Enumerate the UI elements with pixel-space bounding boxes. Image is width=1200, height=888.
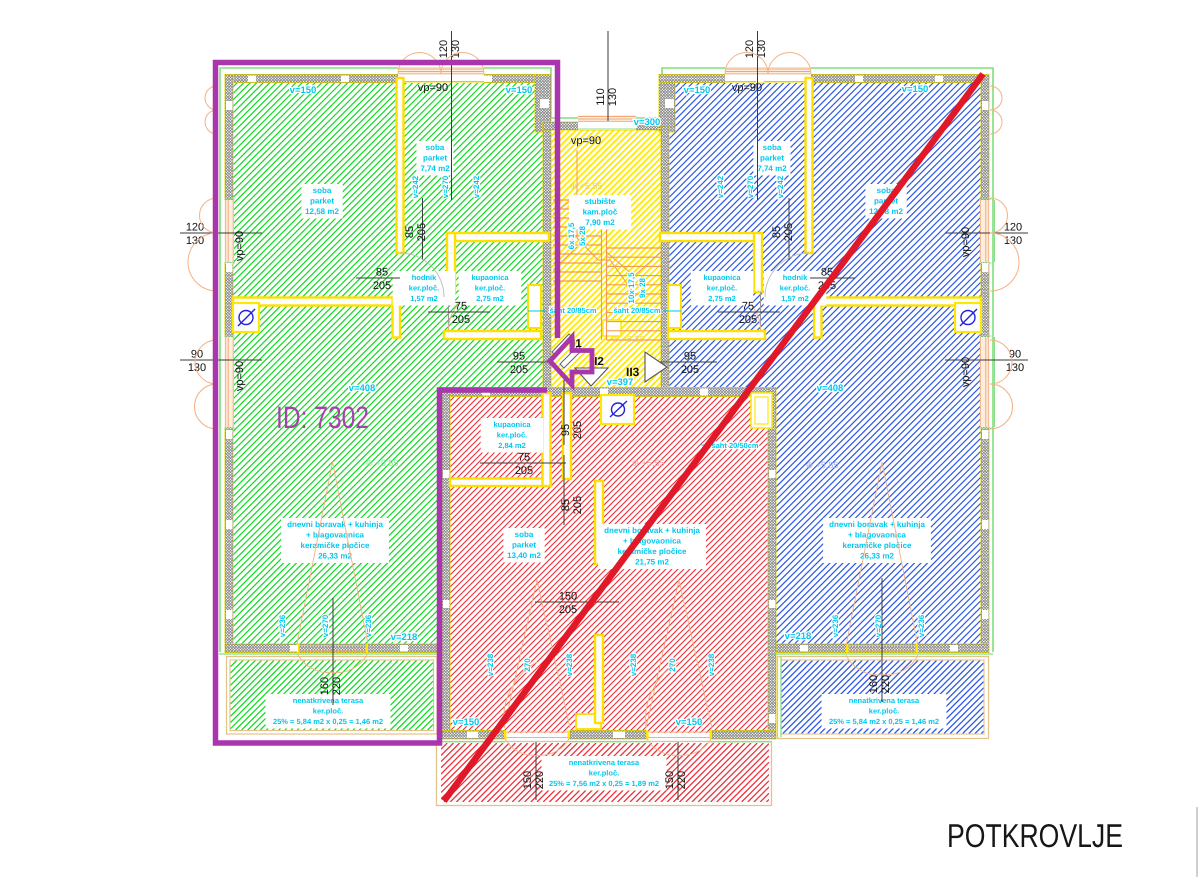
svg-text:šaht 20/50cm: šaht 20/50cm xyxy=(711,441,758,450)
svg-text:ID: 7302: ID: 7302 xyxy=(276,400,369,435)
svg-text:130: 130 xyxy=(1004,235,1022,247)
svg-text:25% = 5,84 m2 x 0,25 = 1,46 m2: 25% = 5,84 m2 x 0,25 = 1,46 m2 xyxy=(273,717,383,726)
svg-text:120: 120 xyxy=(744,40,756,58)
svg-text:⊕ +5,85: ⊕ +5,85 xyxy=(806,460,839,470)
svg-text:85: 85 xyxy=(404,226,416,238)
svg-text:kam.ploč: kam.ploč xyxy=(583,208,618,217)
svg-text:v=236: v=236 xyxy=(278,614,287,637)
svg-text:stubište: stubište xyxy=(585,197,616,206)
svg-text:soba: soba xyxy=(313,186,332,195)
svg-text:soba: soba xyxy=(763,143,782,152)
svg-text:⊕ +5,85: ⊕ +5,85 xyxy=(570,181,603,191)
svg-text:ker.ploč.: ker.ploč. xyxy=(409,284,439,293)
svg-text:vp=90: vp=90 xyxy=(732,82,762,94)
svg-text:160: 160 xyxy=(868,675,880,693)
svg-text:ker.ploč.: ker.ploč. xyxy=(475,284,505,293)
svg-text:205: 205 xyxy=(572,496,584,514)
svg-text:POTKROVLJE: POTKROVLJE xyxy=(947,817,1123,854)
svg-text:25% = 7,56 m2 x 0,25 = 1,89 m2: 25% = 7,56 m2 x 0,25 = 1,89 m2 xyxy=(549,779,659,788)
svg-text:v=238: v=238 xyxy=(565,653,574,676)
svg-text:hodnik: hodnik xyxy=(783,273,808,282)
svg-text:kupaonica: kupaonica xyxy=(493,420,531,429)
svg-text:ker.ploč.: ker.ploč. xyxy=(780,284,810,293)
svg-text:205: 205 xyxy=(559,604,577,616)
svg-text:dnevni boravak + kuhinja: dnevni boravak + kuhinja xyxy=(829,520,925,529)
svg-text:120: 120 xyxy=(1004,222,1022,234)
svg-text:v=218: v=218 xyxy=(391,632,418,643)
svg-text:v=236: v=236 xyxy=(364,614,373,637)
svg-text:v=150: v=150 xyxy=(453,717,480,728)
svg-text:vp=90: vp=90 xyxy=(960,227,972,257)
svg-text:vp=90: vp=90 xyxy=(234,361,246,391)
svg-text:parket: parket xyxy=(310,197,334,206)
svg-text:2,75 m2: 2,75 m2 xyxy=(708,294,736,303)
svg-text:v=150: v=150 xyxy=(684,85,711,96)
svg-text:šaht 20/85cm: šaht 20/85cm xyxy=(613,306,660,315)
svg-text:205: 205 xyxy=(681,364,699,376)
svg-text:5x 28: 5x 28 xyxy=(578,225,587,246)
svg-text:95: 95 xyxy=(684,351,696,363)
svg-text:160: 160 xyxy=(319,677,331,695)
svg-text:120: 120 xyxy=(438,40,450,58)
svg-text:v=242: v=242 xyxy=(776,175,785,198)
svg-text:130: 130 xyxy=(186,235,204,247)
svg-text:7,74 m2: 7,74 m2 xyxy=(420,164,450,173)
svg-text:13,40 m2: 13,40 m2 xyxy=(507,551,541,560)
svg-text:vp=90: vp=90 xyxy=(960,357,972,387)
svg-text:vp=90: vp=90 xyxy=(571,135,601,147)
svg-text:v=236: v=236 xyxy=(831,614,840,637)
svg-text:parket: parket xyxy=(423,154,447,163)
svg-text:220: 220 xyxy=(331,677,343,695)
svg-text:+ blagovaonica: + blagovaonica xyxy=(848,531,907,540)
svg-text:205: 205 xyxy=(452,314,470,326)
svg-text:2,84 m2: 2,84 m2 xyxy=(498,441,526,450)
svg-text:85: 85 xyxy=(771,226,783,238)
svg-text:v=238: v=238 xyxy=(486,653,495,676)
svg-text:v=150: v=150 xyxy=(506,85,533,96)
svg-text:220: 220 xyxy=(534,771,546,789)
svg-text:130: 130 xyxy=(607,88,619,106)
svg-text:270: 270 xyxy=(668,658,677,672)
svg-text:⊕ +5,55: ⊕ +5,55 xyxy=(632,458,665,468)
svg-text:7,74 m2: 7,74 m2 xyxy=(757,164,787,173)
svg-text:205: 205 xyxy=(783,223,795,241)
svg-text:vp=90: vp=90 xyxy=(234,231,246,261)
svg-text:nenatkrivena terasa: nenatkrivena terasa xyxy=(569,758,640,767)
svg-text:kupaonica: kupaonica xyxy=(471,273,509,282)
svg-text:parket: parket xyxy=(512,541,536,550)
svg-text:205: 205 xyxy=(572,421,584,439)
svg-text:1,57 m2: 1,57 m2 xyxy=(781,294,809,303)
svg-text:soba: soba xyxy=(426,143,445,152)
svg-text:205: 205 xyxy=(510,364,528,376)
svg-text:+ blagovaonica: + blagovaonica xyxy=(306,531,365,540)
svg-text:2,75 m2: 2,75 m2 xyxy=(476,294,504,303)
svg-text:150: 150 xyxy=(664,771,676,789)
svg-text:keramičke pločice: keramičke pločice xyxy=(843,541,912,550)
svg-text:v=218: v=218 xyxy=(785,631,812,642)
svg-text:ker.ploč.: ker.ploč. xyxy=(589,769,619,778)
svg-text:21,75 m2: 21,75 m2 xyxy=(635,558,669,567)
svg-text:v=242: v=242 xyxy=(472,175,481,198)
svg-text:26,33 m2: 26,33 m2 xyxy=(860,552,894,561)
svg-text:270: 270 xyxy=(523,658,532,672)
svg-text:kupaonica: kupaonica xyxy=(703,273,741,282)
svg-text:150: 150 xyxy=(522,771,534,789)
svg-text:nenatkrivena terasa: nenatkrivena terasa xyxy=(849,696,920,705)
svg-text:6x 17,5: 6x 17,5 xyxy=(567,222,576,249)
svg-text:dnevni boravak + kuhinja: dnevni boravak + kuhinja xyxy=(604,526,700,535)
svg-text:12,58 m2: 12,58 m2 xyxy=(305,207,339,216)
svg-text:⊕ +5,85: ⊕ +5,85 xyxy=(366,458,399,468)
svg-text:v=236: v=236 xyxy=(917,614,926,637)
svg-text:⊕ +6,30: ⊕ +6,30 xyxy=(612,334,645,344)
svg-text:90: 90 xyxy=(191,349,203,361)
svg-text:ker.ploč.: ker.ploč. xyxy=(707,284,737,293)
svg-text:7,90 m2: 7,90 m2 xyxy=(585,218,615,227)
svg-text:ker.ploč.: ker.ploč. xyxy=(497,431,527,440)
svg-text:soba: soba xyxy=(515,530,534,539)
svg-text:ker.ploč.: ker.ploč. xyxy=(869,707,899,716)
svg-text:220: 220 xyxy=(880,675,892,693)
svg-text:ker.ploč.: ker.ploč. xyxy=(313,707,343,716)
svg-text:v=150: v=150 xyxy=(676,717,703,728)
svg-text:1,57 m2: 1,57 m2 xyxy=(410,294,438,303)
svg-text:75: 75 xyxy=(742,301,754,313)
svg-text:nenatkrivena terasa: nenatkrivena terasa xyxy=(293,696,364,705)
svg-text:150: 150 xyxy=(559,591,577,603)
svg-text:v=408: v=408 xyxy=(349,383,376,394)
svg-text:v=242: v=242 xyxy=(716,175,725,198)
svg-text:9x 28: 9x 28 xyxy=(638,277,647,298)
svg-text:85: 85 xyxy=(376,267,388,279)
svg-text:75: 75 xyxy=(455,301,467,313)
svg-text:keramičke pločice: keramičke pločice xyxy=(301,541,370,550)
svg-text:110: 110 xyxy=(595,88,607,106)
svg-text:hodnik: hodnik xyxy=(412,273,437,282)
svg-text:v=242: v=242 xyxy=(411,175,420,198)
svg-text:130: 130 xyxy=(1006,362,1024,374)
svg-text:v=238: v=238 xyxy=(629,653,638,676)
svg-text:v=270: v=270 xyxy=(321,614,330,637)
svg-text:v=150: v=150 xyxy=(290,85,317,96)
svg-text:II3: II3 xyxy=(626,365,640,379)
svg-text:85: 85 xyxy=(560,499,572,511)
svg-text:v=300: v=300 xyxy=(634,117,661,128)
svg-text:v=408: v=408 xyxy=(817,383,844,394)
svg-text:v=270: v=270 xyxy=(441,175,450,198)
svg-text:v=238: v=238 xyxy=(707,653,716,676)
svg-text:205: 205 xyxy=(373,280,391,292)
svg-text:205: 205 xyxy=(739,314,757,326)
svg-text:v=270: v=270 xyxy=(746,175,755,198)
svg-text:95: 95 xyxy=(513,351,525,363)
svg-text:10x 17,5: 10x 17,5 xyxy=(627,272,636,304)
svg-text:205: 205 xyxy=(416,223,428,241)
svg-text:v=150: v=150 xyxy=(902,84,929,95)
svg-text:75: 75 xyxy=(518,452,530,464)
svg-text:parket: parket xyxy=(760,154,784,163)
svg-text:vp=90: vp=90 xyxy=(418,82,448,94)
svg-text:220: 220 xyxy=(676,771,688,789)
svg-text:dnevni boravak + kuhinja: dnevni boravak + kuhinja xyxy=(287,520,383,529)
svg-text:205: 205 xyxy=(515,465,533,477)
svg-text:25% = 5,84 m2 x 0,25 = 1,46 m2: 25% = 5,84 m2 x 0,25 = 1,46 m2 xyxy=(829,717,939,726)
svg-text:26,33 m2: 26,33 m2 xyxy=(318,552,352,561)
svg-text:95: 95 xyxy=(560,424,572,436)
